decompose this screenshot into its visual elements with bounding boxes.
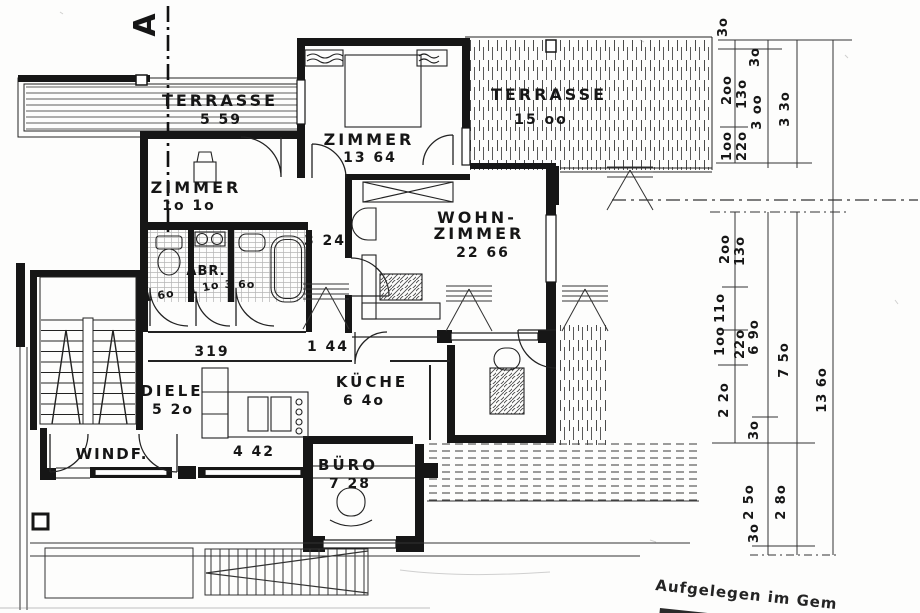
room-label-abr: ABR. [186, 264, 225, 279]
floor-plan-scan: A [0, 0, 920, 613]
dim-value: 2 5o [742, 484, 757, 520]
room-area-terrasse-ost: 15 oo [514, 112, 568, 128]
area-flur-klein: 1 44 [307, 339, 349, 355]
room-area-zimmer-nord: 13 64 [343, 150, 397, 166]
bed-icon [345, 55, 421, 127]
room-label-terrasse-west: TERRASSE [162, 91, 278, 110]
room-area-zimmer-west: 1o 1o [162, 198, 216, 214]
dim-value: 22o [735, 131, 750, 161]
dim-value: 2oo [720, 75, 735, 105]
chair-icon [494, 348, 520, 370]
sofa-icon [362, 303, 440, 319]
room-area-wohnzimmer: 22 66 [456, 245, 510, 261]
sofa-icon [362, 255, 376, 319]
room-label-wohnzimmer-2: ZIMMER [434, 224, 525, 243]
dim-value: 11o [713, 293, 728, 323]
room-label-zimmer-west: ZIMMER [151, 178, 242, 197]
dim-value: 3 3o [778, 91, 793, 127]
terrace-east [465, 37, 712, 205]
window-marker-icon [562, 286, 608, 331]
room-label-buero: BÜRO [318, 455, 378, 474]
room-label-windfang: WINDF. [76, 445, 149, 463]
dim-value: 22o [733, 329, 748, 359]
coffee-table-icon [380, 274, 422, 300]
section-marker-label: A [128, 13, 163, 37]
dim-value: 6 9o [747, 319, 762, 355]
dim-value: 3o [748, 47, 763, 67]
window-marker-icon [607, 167, 653, 210]
room-area-buero: 7 28 [329, 476, 371, 492]
room-area-essplatz: 4 42 [233, 444, 275, 460]
dim-value: 7 5o [777, 342, 792, 378]
floor-plan-drawing: A [0, 0, 920, 613]
sink-icon [271, 397, 291, 431]
dim-value: 13o [735, 79, 750, 109]
window-marker-icon [446, 286, 492, 331]
terrace-south [427, 325, 699, 501]
dimension-labels: 3o 2oo 1oo 3o 13o 22o 3 oo 3 3o 2oo 13o … [713, 17, 830, 543]
area-flur: 319 [194, 344, 229, 360]
desk-chair-icon [337, 488, 365, 516]
room-label-kueche: KÜCHE [336, 372, 408, 391]
sink-icon [248, 397, 268, 431]
dim-value: 3o [747, 420, 762, 440]
dim-value: 1oo [720, 131, 735, 161]
armchair-icon [352, 208, 376, 240]
dim-value: 2oo [718, 234, 733, 264]
stamp-cutoff-line [659, 608, 719, 613]
room-area-terrasse-west: 5 59 [200, 112, 242, 128]
room-area-bad: 3 6o [225, 278, 256, 291]
dim-value: 3o [716, 17, 731, 37]
rug-icon [490, 368, 524, 414]
dim-value: 3o [747, 523, 762, 543]
room-label-terrasse-ost: TERRASSE [491, 85, 607, 104]
kitchen-cabinet-icon [202, 368, 228, 438]
room-area-diele: 5 2o [152, 402, 194, 418]
room-label-diele: DIELE [140, 382, 203, 400]
stamp-text: Aufgelegen im Gem [655, 576, 839, 613]
dim-value: 3 oo [750, 94, 765, 129]
dim-value: 2 8o [774, 484, 789, 520]
stove-icon [296, 399, 302, 405]
dim-value: 13 6o [815, 367, 830, 413]
dim-value: 1oo [713, 326, 728, 356]
room-area-kueche: 6 4o [343, 393, 385, 409]
area-flur-oben: 3 24 [304, 233, 346, 249]
stairwell [40, 277, 136, 424]
room-label-zimmer-nord: ZIMMER [324, 130, 415, 149]
dim-value: 2 2o [717, 382, 732, 418]
dim-value: 13o [733, 236, 748, 266]
